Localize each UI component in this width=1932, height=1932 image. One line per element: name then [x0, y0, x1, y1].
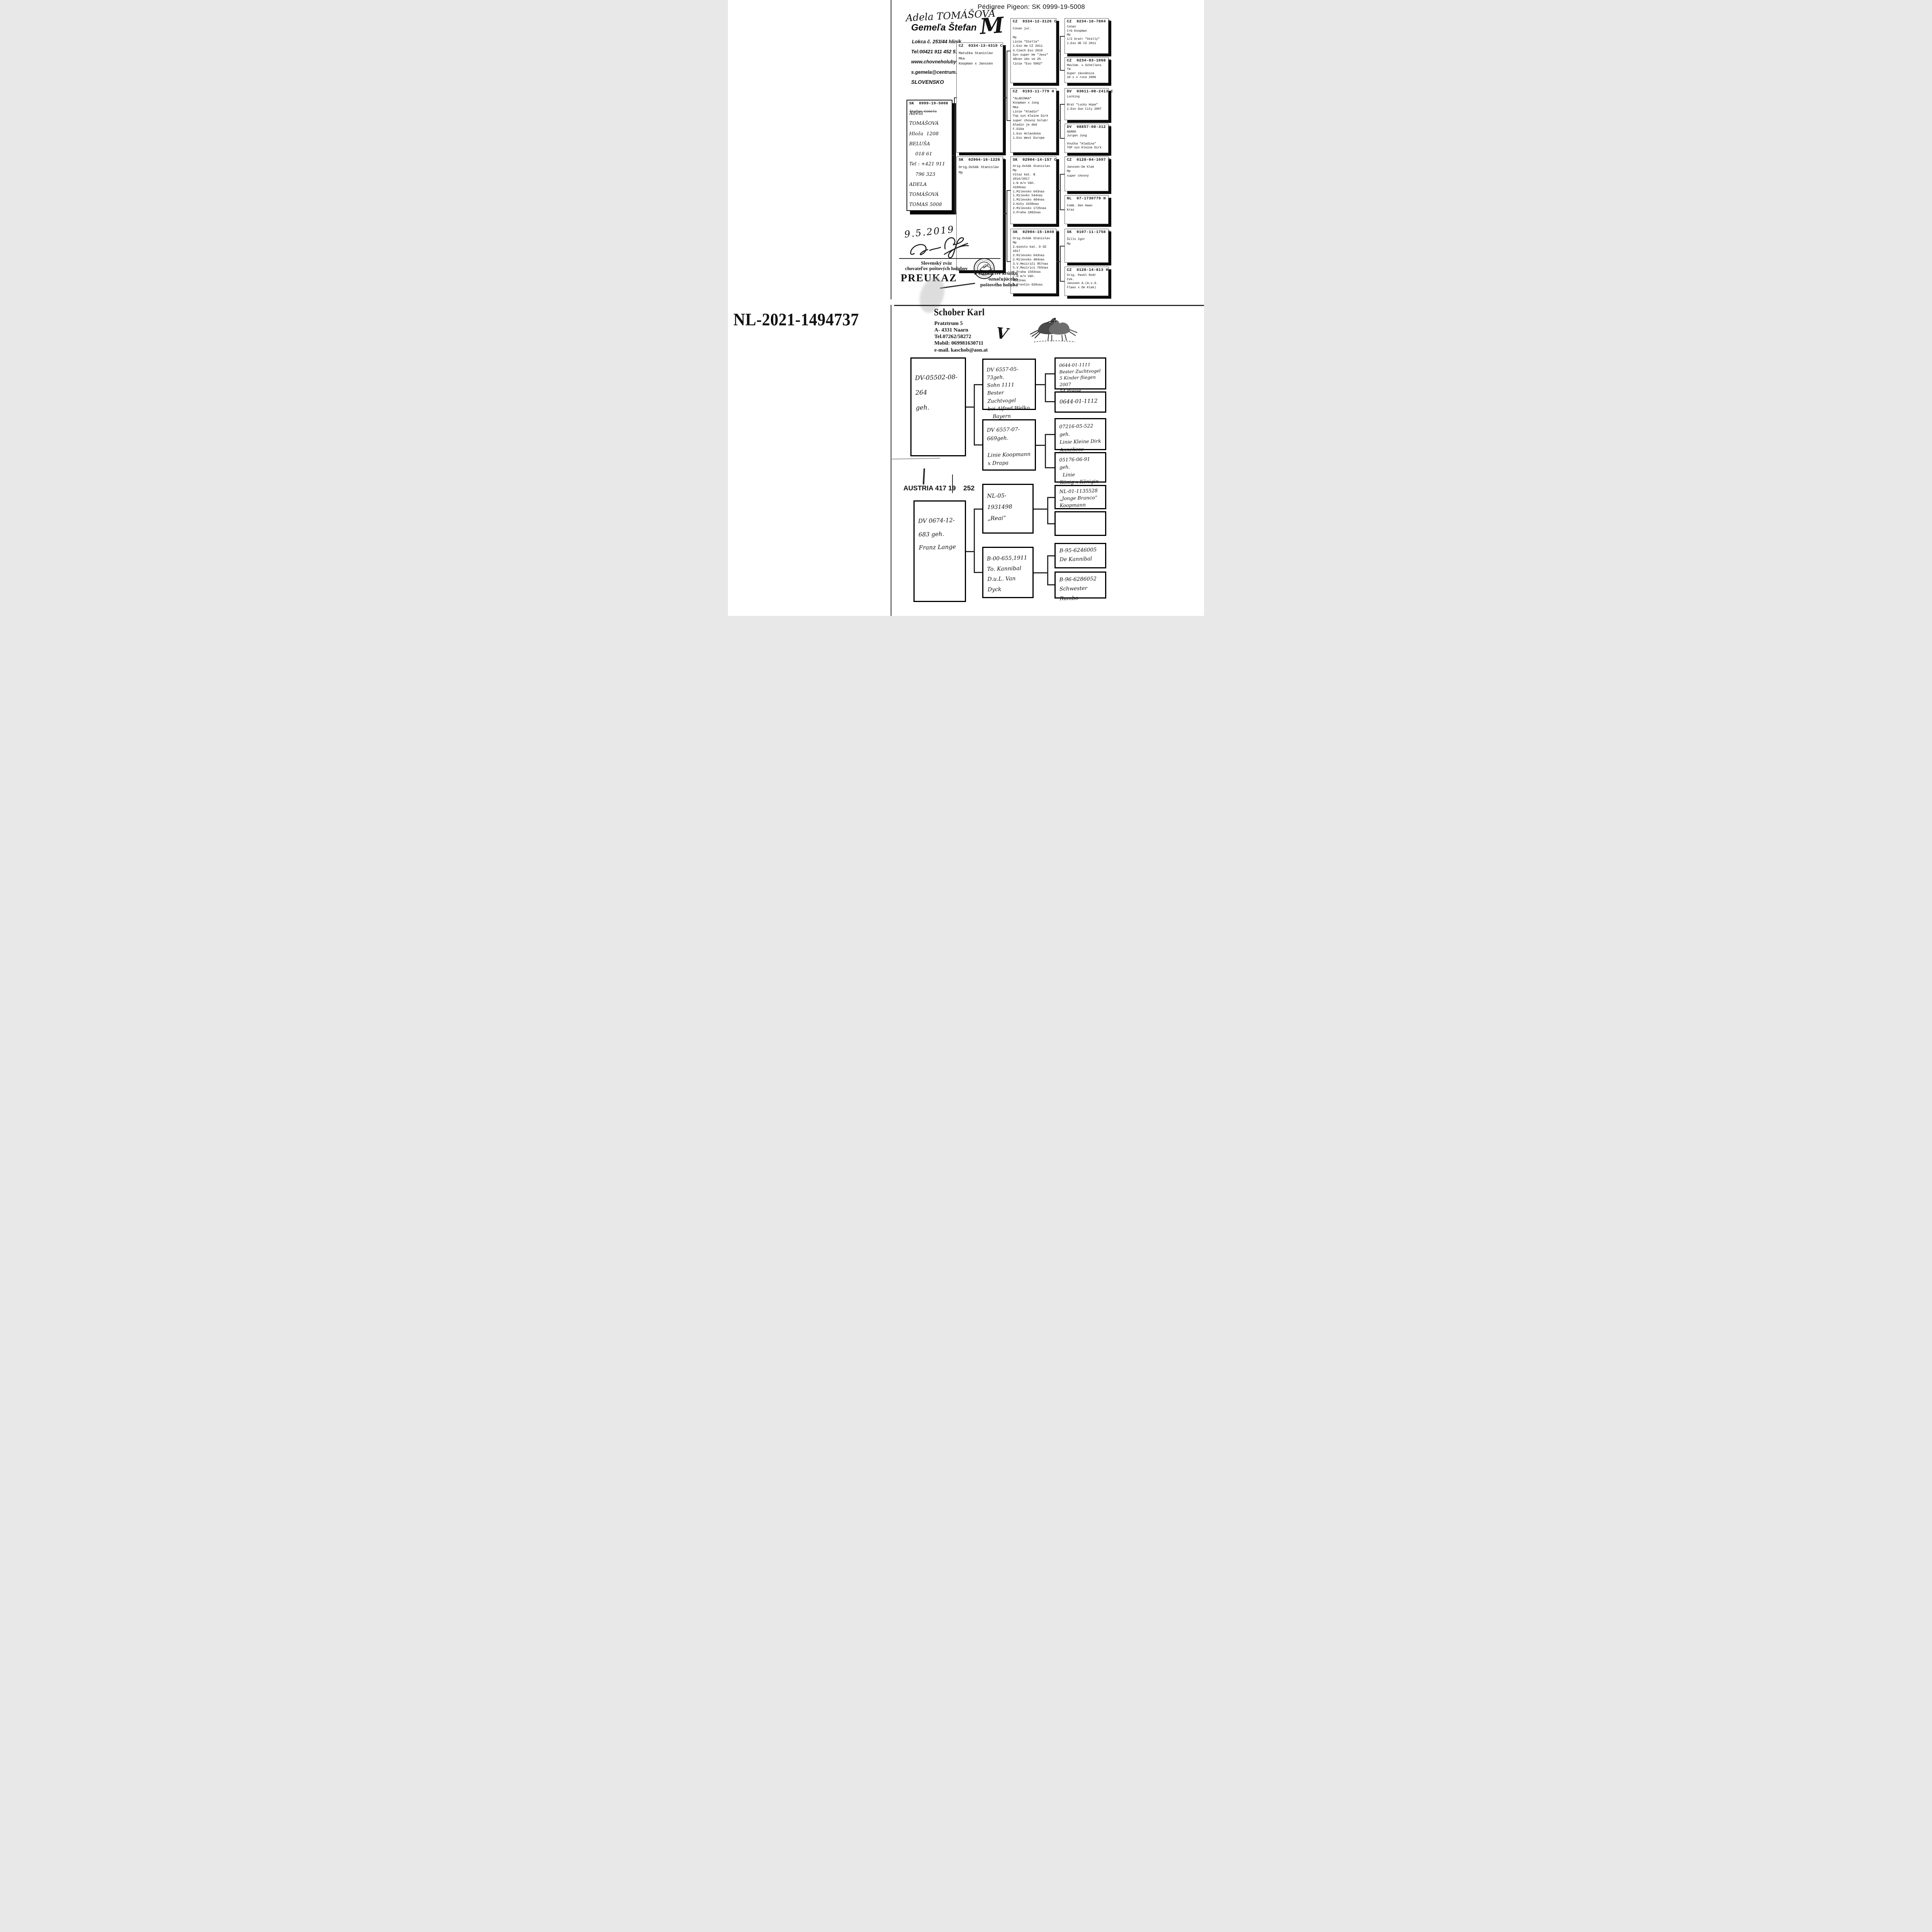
box-handwriting: B-96-6286052 Schwester Rambo — [1059, 574, 1102, 604]
ring-number: CZ 0334-13-4319 C — [959, 44, 1001, 48]
box-handwriting: DV 0674-12-683 geh. Franz Lange — [918, 514, 963, 554]
tree-box-grandparent: NL-01-1135528 „Jonge Branco“ Koopmann — [1054, 485, 1106, 509]
connector-line — [952, 474, 953, 493]
connector-line — [954, 97, 956, 98]
bottom-owner-tel: Tel.07262/58272 — [934, 334, 971, 340]
ring-number: SK 0107-11-1758 C — [1067, 230, 1106, 235]
connector-line — [1060, 104, 1061, 139]
box-notes: Orig.Ovšák Stanislav Mp Vitaz kat. B 201… — [1013, 164, 1054, 215]
bottom-owner-address2: A- 4331 Naarn — [934, 327, 968, 333]
connector-line — [1056, 120, 1060, 121]
pedigree-box-greatgrandparent: SK 0107-11-1758 C Šillo Igor Mp — [1065, 229, 1109, 263]
connector-line — [1045, 373, 1054, 374]
pedigree-box-greatgrandparent: CZ 0234-10-7804 C Conan C+G Koopman Mp 1… — [1065, 18, 1109, 54]
connector-line — [1047, 497, 1048, 524]
tree-box-grandparent: 05176-06-91 geh. Linie König x Königin — [1054, 452, 1106, 483]
box-notes: Conan C+G Koopman Mp 1/2 bratr "Stelly" … — [1067, 25, 1106, 46]
scanned-pedigree-page: Pédigree Pigeon: SK 0999-19-5008 Adela T… — [728, 0, 1204, 616]
pedigree-box-grandparent: CZ 0334-12-3126 C Conan jur. Mp Linie "S… — [1010, 18, 1056, 83]
breeder-email: s.gemela@centrum.sk — [911, 70, 962, 75]
pigeons-sketch-icon — [1026, 306, 1080, 347]
connector-line — [1060, 138, 1065, 139]
connector-line — [1056, 51, 1060, 51]
connector-line — [1060, 36, 1061, 71]
connector-line — [1060, 174, 1061, 210]
connector-line — [1047, 523, 1054, 524]
connector-line — [1047, 584, 1054, 585]
connector-line — [1060, 70, 1065, 71]
ring-number: CZ 0234-03-1068 H — [1067, 59, 1106, 63]
tree-box-grandparent: 0644-01-1112 — [1054, 391, 1106, 413]
box-notes: Orig.Ovšák Stanislav Mp — [959, 165, 1001, 175]
ring-number: DV 08857-08-312 H — [1067, 125, 1106, 129]
box-notes: Conan jur. Mp Linie "Stella" 1.Eso He CZ… — [1013, 27, 1054, 66]
connector-line — [1003, 97, 1007, 98]
tree-box-grandparent-empty — [1054, 511, 1106, 536]
signature-icon — [906, 234, 976, 261]
box-handwriting: 0644-01-1112 — [1060, 396, 1102, 407]
connector-line — [974, 384, 982, 385]
owner-mark-handwritten: M — [979, 12, 1005, 39]
connector-line — [1034, 509, 1047, 510]
tree-box-parent: B-00-655,1911 To. Kannibal D.u.L. Van Dy… — [982, 547, 1034, 598]
pedigree-box-greatgrandparent: DV 08857-08-312 H ADARA Jurgen Jung Vnuč… — [1065, 124, 1109, 153]
pedigree-box-sire: CZ 0334-13-4319 C Matuška Stanislav Mka … — [956, 43, 1003, 153]
tree-box-subject-top: DV-05502-08-264 geh. — [910, 357, 966, 456]
check-mark-handwritten: V — [995, 324, 1009, 344]
bottom-doc-left-edge — [891, 305, 891, 616]
connector-line — [1060, 104, 1065, 105]
connector-line — [1047, 497, 1054, 498]
bottom-doc-top-edge — [894, 305, 1204, 306]
ring-number: SK 02904-16-1226 H — [959, 158, 1001, 162]
box-notes: Orig.Ovšák Stanislav Mp 2.miesto kat. D … — [1013, 236, 1054, 287]
pedigree-box-greatgrandparent: CZ 0234-03-1068 H Meulem. x Schellens Tm… — [1065, 57, 1109, 83]
ring-number: SK 02904-15-1049 H — [1013, 230, 1054, 235]
connector-line — [966, 551, 975, 552]
tree-box-parent: DV 6557-07-669geh. Linie Koopmann x Drap… — [982, 419, 1036, 471]
box-notes: Šillo Igor Mp — [1067, 237, 1106, 247]
box-notes: Lucking Brat "Lucky Hope" 1.Eso Sun City… — [1067, 95, 1106, 112]
bottom-owner-email: e-mail. kaschob@aon.at — [934, 347, 988, 353]
box-handwriting: 0644-01-1111 Bester Zuchtvogel 5 Kinder … — [1059, 361, 1102, 395]
box-handwriting: 07216-05-522 geh. Linie Kleine Dirk Anne… — [1059, 422, 1102, 454]
connector-line — [1007, 261, 1010, 262]
ring-number: CZ 0193-11-779 H — [1013, 90, 1054, 94]
subject-ring-number: SK 0999-19-5008 — [909, 102, 950, 106]
pedigree-box-greatgrandparent: DV 03611-08-2413 C Lucking Brat "Lucky H… — [1065, 88, 1109, 120]
breeder-country: SLOVENSKO — [911, 79, 944, 85]
box-handwriting: B-95-6246005 De Kannibal — [1059, 546, 1102, 565]
box-handwriting: NL-01-1135528 „Jonge Branco“ Koopmann — [1059, 487, 1102, 509]
tree-box-parent: NL-05-1931498 „Reai“ — [982, 484, 1034, 534]
box-notes: Janssen-De Klak Mp super chovný — [1067, 165, 1106, 178]
breeder-name: Gemeľa Štefan — [911, 22, 977, 33]
ring-number: SK 02904-14-157 C — [1013, 158, 1054, 162]
connector-line — [1003, 213, 1007, 214]
connector-line — [1060, 36, 1065, 37]
austria-ring-line: AUSTRIA 417 19 252 — [903, 484, 975, 492]
connector-line — [1045, 401, 1054, 402]
connector-line — [1036, 445, 1046, 446]
subject-handwritten-details: Adela TOMÁŠOVÁ Hloža 1208 BELUŠA 018 61 … — [909, 108, 950, 210]
box-notes: Matuška Stanislav Mka Koopman x Janssen — [959, 51, 1001, 67]
connector-line — [1007, 190, 1007, 262]
box-notes: ADARA Jurgen Jung Vnučka "Aladina" TOP s… — [1067, 130, 1106, 150]
connector-line — [974, 509, 982, 510]
box-handwriting: DV-05502-08-264 geh. — [915, 369, 963, 415]
breeder-web: www.chovneholuby.sk — [911, 59, 963, 65]
box-notes: Orig. Pavel Rodr čvk. Janssen A.(A.v.d. … — [1067, 274, 1106, 290]
connector-line — [1007, 51, 1010, 51]
box-handwriting: 05176-06-91 geh. Linie König x Königin — [1059, 455, 1102, 486]
connector-line — [1036, 384, 1046, 385]
connector-line — [1047, 555, 1054, 556]
ring-number: CZ 0334-12-3126 C — [1013, 20, 1054, 24]
top-doc-left-edge — [891, 0, 891, 299]
ring-number: NL 07-1730779 H — [1067, 197, 1106, 201]
box-handwriting — [1060, 517, 1102, 519]
connector-line — [1007, 120, 1010, 121]
connector-line — [974, 572, 982, 573]
pedigree-box-greatgrandparent: CZ 0128-14-813 H Orig. Pavel Rodr čvk. J… — [1065, 267, 1109, 296]
pedigree-box-grandparent: SK 02904-14-157 C Orig.Ovšák Stanislav M… — [1010, 156, 1056, 224]
connector-line — [952, 155, 954, 156]
box-notes: Meulem. x Schellens Tm Super závodnice 1… — [1067, 64, 1106, 80]
connector-line — [1060, 281, 1065, 282]
connector-line — [1045, 373, 1046, 402]
connector-line — [1045, 434, 1054, 435]
connector-line — [1045, 467, 1054, 468]
box-notes: Comb. Den Haan Kras — [1067, 204, 1106, 213]
tree-box-grandparent: B-95-6246005 De Kannibal — [1054, 543, 1106, 568]
pedigree-box-greatgrandparent: CZ 0128-04-1097 C Janssen-De Klak Mp sup… — [1065, 156, 1109, 191]
ring-number: CZ 0128-14-813 H — [1067, 268, 1106, 272]
association-name: Slovenský zväz chovateľov poštových holu… — [901, 260, 972, 272]
big-ring-number: NL-2021-1494737 — [733, 310, 859, 330]
box-handwriting: NL-05-1931498 „Reai“ — [987, 490, 1030, 525]
subject-pigeon-box: SK 0999-19-5008 Štefan Gemeľa Adela TOMÁ… — [906, 100, 952, 211]
tree-box-grandparent: 07216-05-522 geh. Linie Kleine Dirk Anne… — [1054, 418, 1106, 450]
breeder-address: Lokca č. 253/44 hliník — [912, 39, 961, 44]
connector-line — [974, 384, 975, 445]
connector-line — [1045, 434, 1046, 468]
ring-number: DV 03611-08-2413 C — [1067, 90, 1106, 94]
pedigree-box-greatgrandparent: NL 07-1730779 H Comb. Den Haan Kras — [1065, 195, 1109, 224]
connector-line — [974, 444, 982, 446]
connector-line — [954, 213, 956, 213]
connector-line — [1034, 572, 1047, 573]
pedigree-box-grandparent: CZ 0193-11-779 H "ALADINKA" Koopman x Ju… — [1010, 88, 1056, 153]
ring-number: CZ 0234-10-7804 C — [1067, 20, 1106, 24]
connector-line — [1007, 51, 1007, 121]
box-handwriting: B-00-655,1911 To. Kannibal D.u.L. Van Dy… — [987, 553, 1030, 595]
connector-line — [1060, 246, 1061, 282]
connector-line — [974, 509, 975, 573]
tree-box-grandparent: 0644-01-1111 Bester Zuchtvogel 5 Kinder … — [1054, 357, 1106, 389]
box-notes: "ALADINKA" Koopman x Jung Mka Linie "Ala… — [1013, 97, 1054, 140]
handwritten-tick — [923, 468, 925, 485]
breeder-tel: Tel:00421 911 452 512 — [911, 49, 961, 54]
tree-box-subject-bottom: DV 0674-12-683 geh. Franz Lange — [913, 500, 966, 602]
tree-box-parent: DV 6557-05-73geh. Sohn 1111 Bester Zucht… — [982, 359, 1036, 410]
tree-box-grandparent: B-96-6286052 Schwester Rambo — [1054, 571, 1106, 599]
connector-line — [1047, 555, 1048, 585]
bottom-owner-address1: Pratztrum 5 — [934, 321, 963, 327]
ring-number: CZ 0128-04-1097 C — [1067, 158, 1106, 162]
connector-line — [1060, 174, 1065, 175]
page-seam — [892, 458, 940, 459]
connector-line — [1060, 246, 1065, 247]
bottom-owner-name: Schober Karl — [934, 307, 985, 318]
connector-line — [1056, 190, 1060, 191]
connector-line — [966, 406, 975, 408]
box-handwriting: DV 6557-07-669geh. Linie Koopmann x Drap… — [987, 425, 1032, 468]
bottom-owner-mobil: Mobil: 069981630711 — [934, 340, 983, 347]
box-handwriting: DV 6557-05-73geh. Sohn 1111 Bester Zucht… — [986, 366, 1032, 421]
connector-line — [1056, 261, 1060, 262]
connector-line — [1007, 190, 1010, 191]
connector-line — [1060, 209, 1065, 210]
